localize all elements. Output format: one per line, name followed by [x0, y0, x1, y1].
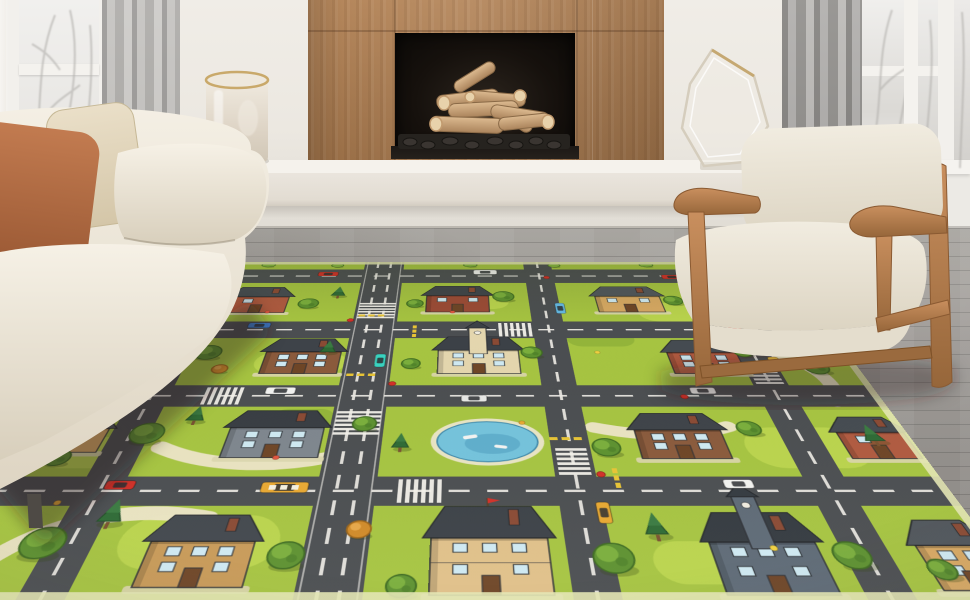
living-room-scene	[0, 0, 970, 600]
play-rug	[0, 0, 970, 600]
rug-shading	[0, 262, 970, 600]
play-rug-map	[0, 262, 970, 600]
rug-city-map	[0, 262, 970, 600]
